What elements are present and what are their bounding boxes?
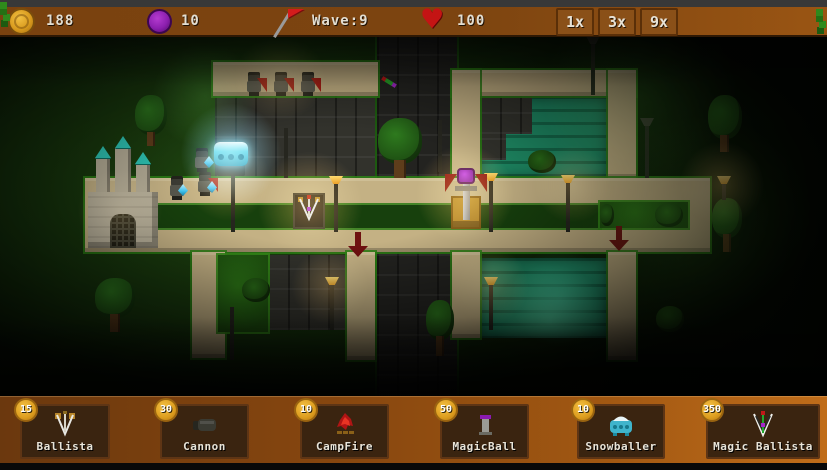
magic-ballista-icon bbox=[708, 411, 818, 439]
placed-ballista-tower[interactable] bbox=[293, 193, 325, 229]
bush bbox=[528, 150, 556, 173]
speed-button-3x[interactable]: 3x bbox=[598, 8, 636, 36]
gem-count: 10 bbox=[181, 13, 200, 29]
gem-icon bbox=[147, 9, 172, 34]
placed-snowballer-tower[interactable] bbox=[213, 136, 249, 176]
price-badge: 15 bbox=[14, 398, 38, 422]
path-water-ring-right bbox=[608, 70, 636, 178]
shop-card-campfire[interactable]: 10 CampFire bbox=[300, 404, 389, 459]
path-water-ring-left bbox=[452, 70, 480, 178]
shop-card-snowballer[interactable]: 10 Snowballer bbox=[577, 404, 665, 459]
shop-item-label: CampFire bbox=[302, 440, 387, 453]
price-badge: 50 bbox=[434, 398, 458, 422]
ballista-bow-icon bbox=[295, 195, 323, 227]
path-median-grass bbox=[150, 205, 600, 228]
path-top-row bbox=[213, 62, 378, 96]
zombie-enemy bbox=[299, 72, 317, 96]
path-branch-mid bbox=[347, 252, 375, 360]
magic-wing-left bbox=[445, 174, 457, 192]
magic-orb bbox=[457, 168, 475, 184]
heart-icon: ♥ bbox=[420, 4, 444, 35]
zombie-enemy-crystal bbox=[196, 172, 214, 196]
bush bbox=[242, 278, 270, 302]
zombie-enemy bbox=[245, 72, 263, 96]
castle-cone-right bbox=[135, 152, 151, 164]
castle-cone-center bbox=[115, 136, 131, 148]
magic-wing-right bbox=[475, 174, 487, 192]
magic-sword-guard bbox=[455, 186, 477, 191]
game-screen: 188 10 Wave:9 ♥ 100 1x 3x 9x 15 Ballista… bbox=[0, 0, 827, 470]
water-pool-bottom bbox=[480, 258, 608, 338]
shop-item-label: Magic Ballista bbox=[708, 440, 818, 453]
price-badge: 10 bbox=[571, 398, 595, 422]
zombie-enemy-crystal bbox=[168, 176, 186, 200]
castle-cone-left bbox=[95, 146, 111, 158]
bush bbox=[600, 204, 614, 226]
wave-flag-icon bbox=[286, 9, 310, 37]
price-badge: 30 bbox=[154, 398, 178, 422]
shop-card-cannon[interactable]: 30 Cannon bbox=[160, 404, 249, 459]
coin-count: 188 bbox=[46, 13, 74, 29]
wave-label: Wave:9 bbox=[312, 13, 369, 29]
shop-card-magicball[interactable]: 50 MagicBall bbox=[440, 404, 529, 459]
shop-card-magic-ballista[interactable]: 350 Magic Ballista bbox=[706, 404, 820, 459]
stone-block-bottom bbox=[268, 255, 350, 330]
shop-card-ballista[interactable]: 15 Ballista bbox=[20, 404, 110, 459]
window-chrome-strip bbox=[0, 0, 827, 7]
vine-decoration bbox=[0, 2, 7, 9]
path-branch-water-left bbox=[452, 252, 480, 338]
shop-bar: 15 Ballista 30 Cannon 10 CampFire 50 bbox=[0, 396, 827, 463]
castle bbox=[86, 144, 160, 248]
price-badge: 350 bbox=[700, 398, 724, 422]
price-badge: 10 bbox=[294, 398, 318, 422]
game-map[interactable] bbox=[0, 36, 827, 396]
shop-item-label: MagicBall bbox=[442, 440, 527, 453]
hud-bar: 188 10 Wave:9 ♥ 100 1x 3x 9x bbox=[0, 7, 827, 37]
bottom-strip bbox=[0, 462, 827, 470]
shop-item-label: Cannon bbox=[162, 440, 247, 453]
coin-icon bbox=[8, 8, 35, 35]
bush bbox=[655, 203, 683, 227]
stone-step-2 bbox=[480, 134, 506, 160]
zombie-enemy-crystal bbox=[193, 148, 211, 172]
castle-gate bbox=[110, 214, 136, 248]
shop-item-label: Snowballer bbox=[579, 440, 663, 453]
vine-decoration bbox=[816, 9, 823, 16]
stone-step-1 bbox=[480, 96, 532, 134]
bush bbox=[656, 306, 684, 332]
speed-button-9x[interactable]: 9x bbox=[640, 8, 678, 36]
health-count: 100 bbox=[457, 13, 485, 29]
zombie-enemy bbox=[272, 72, 290, 96]
path-branch-water-right bbox=[608, 252, 636, 360]
shop-item-label: Ballista bbox=[22, 440, 108, 453]
speed-button-1x[interactable]: 1x bbox=[556, 8, 594, 36]
placed-magicball-tower[interactable] bbox=[449, 168, 483, 230]
